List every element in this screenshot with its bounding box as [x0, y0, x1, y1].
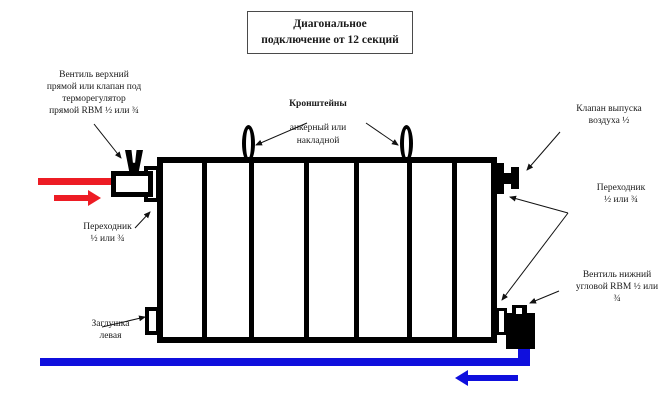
radiator-section-divider: [354, 163, 359, 337]
return-pipe: [40, 358, 530, 366]
label-adapter-left: Переходник ½ или ¾: [55, 221, 160, 245]
diagram-title: Диагональное подключение от 12 секций: [247, 11, 413, 54]
radiator-section-divider: [249, 163, 254, 337]
arrow-to-supply-valve: [94, 124, 121, 158]
return-flow-arrow-shaft: [468, 375, 518, 381]
radiator-body: [157, 157, 497, 343]
label-top-supply-valve: Вентиль верхний прямой или клапан под те…: [33, 69, 155, 118]
label-brackets-title: Кронштейны: [258, 98, 378, 110]
arrow-to-air-valve: [527, 132, 560, 170]
return-valve-body: [506, 313, 535, 349]
supply-valve-body: [111, 171, 153, 197]
label-brackets: Кронштейны анкерный или накладной: [258, 86, 378, 159]
radiator-section-divider: [304, 163, 309, 337]
supply-flow-arrow-icon: [88, 190, 101, 206]
supply-pipe: [38, 178, 114, 185]
arrow-to-return-valve: [530, 291, 559, 303]
supply-flow-arrow-shaft: [54, 195, 88, 201]
label-adapter-right: Переходник ½ или ¾: [577, 182, 665, 206]
diagram-canvas: Диагональное подключение от 12 секций Ве…: [0, 0, 670, 409]
air-valve-cap: [511, 167, 519, 189]
label-bottom-return-valve: Вентиль нижний угловой RBM ½ или ¾: [566, 269, 668, 305]
arrow-adapter-to-bottom-fitting: [502, 213, 568, 300]
return-valve-tab-slot: [516, 308, 522, 314]
radiator-section-divider: [202, 163, 207, 337]
radiator-section-divider: [452, 163, 457, 337]
label-brackets-sub: анкерный или накладной: [258, 122, 378, 146]
supply-valve-handle-icon: [125, 150, 143, 172]
plug-left-fitting: [145, 307, 160, 335]
radiator-section-divider: [407, 163, 412, 337]
return-flow-arrow-icon: [455, 370, 468, 386]
arrow-adapter-to-top-fitting: [510, 197, 568, 213]
label-air-valve: Клапан выпуска воздуха ½: [550, 103, 668, 127]
